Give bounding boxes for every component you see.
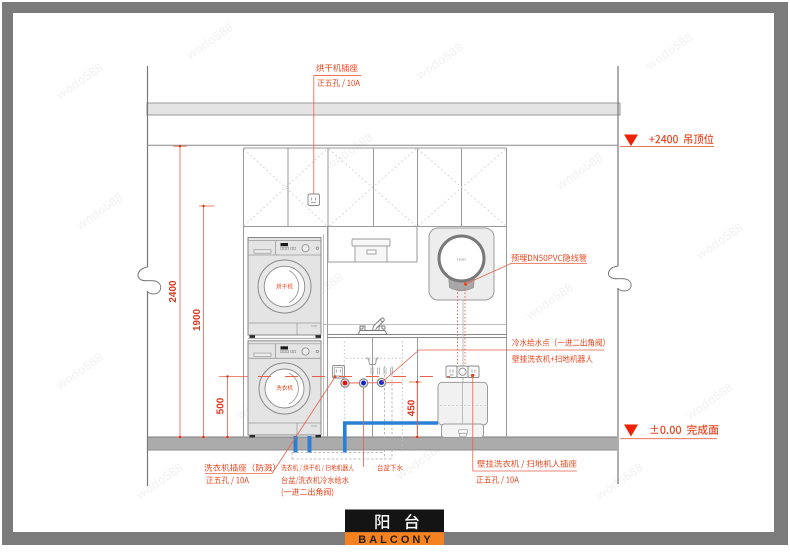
svg-text:BALCONY: BALCONY xyxy=(358,534,433,546)
svg-text:450: 450 xyxy=(407,399,418,416)
svg-text:500: 500 xyxy=(216,397,227,414)
svg-text:Haier: Haier xyxy=(457,257,467,262)
svg-text:1900: 1900 xyxy=(192,308,203,331)
svg-text:2400: 2400 xyxy=(168,280,179,303)
